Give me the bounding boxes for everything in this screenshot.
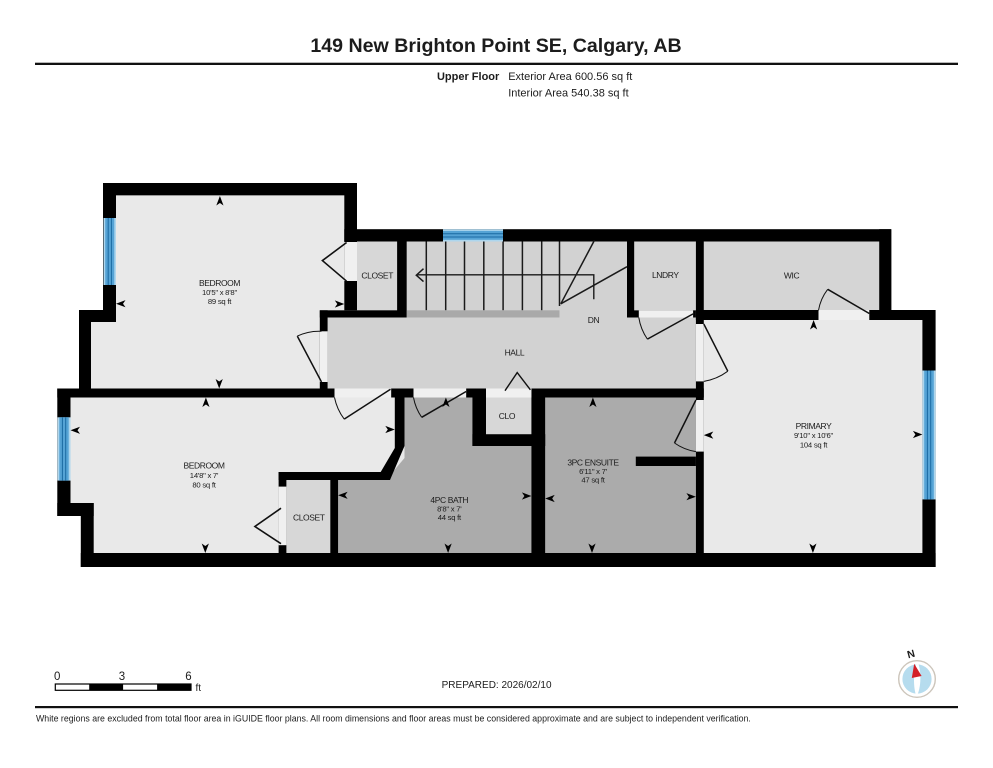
svg-text:Upper Floor: Upper Floor [437, 71, 500, 83]
svg-text:149 New Brighton Point SE, Cal: 149 New Brighton Point SE, Calgary, AB [310, 35, 681, 57]
svg-text:WIC: WIC [784, 271, 800, 281]
svg-text:80 sq ft: 80 sq ft [192, 481, 216, 490]
svg-text:DN: DN [588, 315, 600, 325]
svg-text:BEDROOM: BEDROOM [199, 278, 240, 288]
svg-text:LNDRY: LNDRY [652, 270, 679, 280]
svg-text:104 sq ft: 104 sq ft [800, 440, 828, 449]
svg-text:CLO: CLO [499, 411, 516, 421]
svg-text:White regions are excluded fro: White regions are excluded from total fl… [36, 714, 751, 724]
svg-text:47 sq ft: 47 sq ft [581, 476, 605, 485]
svg-text:Exterior Area 600.56 sq ft: Exterior Area 600.56 sq ft [508, 71, 632, 83]
svg-text:3PC ENSUITE: 3PC ENSUITE [567, 457, 619, 467]
svg-text:PRIMARY: PRIMARY [796, 421, 833, 431]
svg-text:PREPARED: 2026/02/10: PREPARED: 2026/02/10 [442, 680, 552, 691]
svg-text:0: 0 [54, 671, 60, 683]
svg-text:6: 6 [185, 671, 191, 683]
svg-text:CLOSET: CLOSET [293, 513, 325, 523]
svg-text:BEDROOM: BEDROOM [183, 461, 224, 471]
svg-text:44 sq ft: 44 sq ft [438, 513, 462, 522]
svg-text:CLOSET: CLOSET [361, 270, 393, 280]
svg-text:14'8" x 7': 14'8" x 7' [190, 471, 219, 480]
svg-text:10'5" x 8'8": 10'5" x 8'8" [202, 288, 237, 297]
svg-text:3: 3 [119, 671, 125, 683]
svg-text:Interior Area 540.38 sq ft: Interior Area 540.38 sq ft [508, 88, 628, 100]
svg-text:89 sq ft: 89 sq ft [208, 297, 232, 306]
svg-text:HALL: HALL [505, 347, 525, 357]
svg-text:9'10" x 10'6": 9'10" x 10'6" [794, 431, 833, 440]
svg-text:ft: ft [196, 683, 202, 694]
